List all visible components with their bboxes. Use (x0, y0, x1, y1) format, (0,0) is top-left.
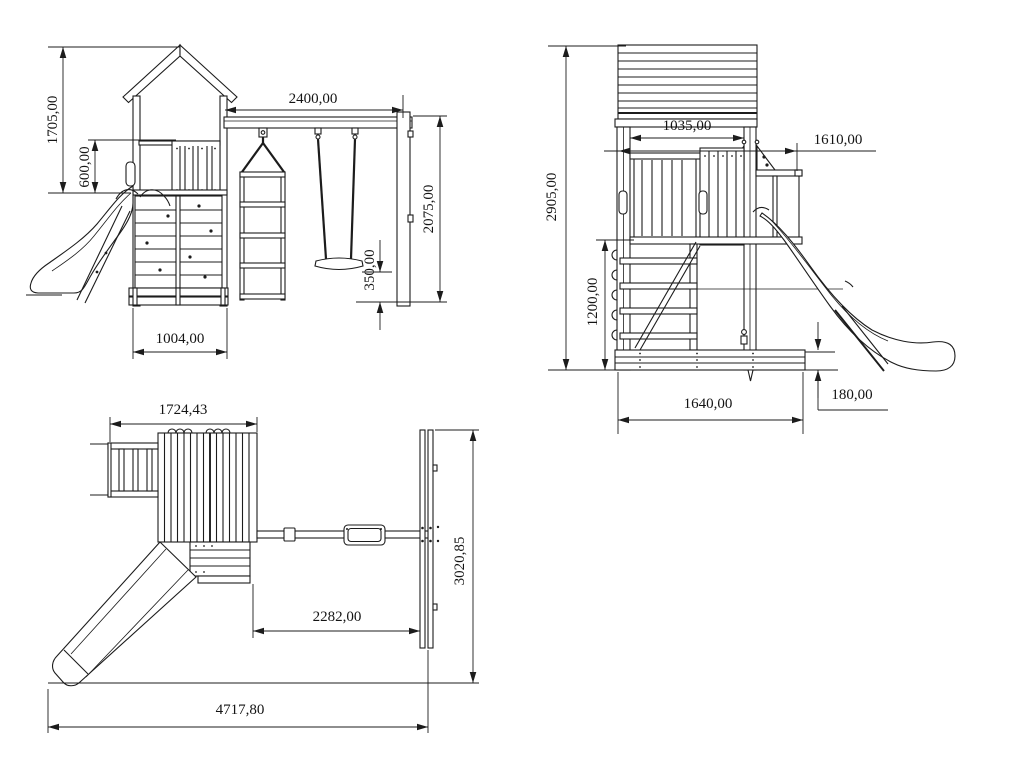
side-ladder (612, 242, 843, 350)
plan-steps (190, 542, 250, 583)
plan-overall-length-label: 4717,80 (216, 702, 265, 718)
side-ladder-height-label: 1200,00 (585, 278, 601, 327)
plan-dim-overall-depth: 3020,85 (435, 430, 479, 683)
plan-swing-frame (420, 430, 439, 648)
side-overall-height-label: 2905,00 (544, 173, 560, 222)
front-dim-beam-length: 2400,00 (225, 91, 403, 118)
side-grab-handle-right (699, 191, 707, 214)
plan-ladder (90, 443, 158, 497)
front-tower-width-label: 1004,00 (156, 331, 205, 347)
side-dim-base-width: 1640,00 (618, 372, 803, 434)
front-dim-seat-height: 350,00 (362, 240, 392, 330)
front-swing (315, 128, 363, 270)
front-balustrade (139, 141, 220, 197)
side-frame-height-label: 180,00 (831, 387, 872, 403)
plan-swing-bay-label: 2282,00 (313, 609, 362, 625)
plan-dim-overall-length: 4717,80 (48, 650, 428, 733)
side-elevation-view: 2905,00 1035,00 1610,00 1200,00 1640,00 (544, 45, 955, 434)
front-grab-handle (126, 162, 135, 186)
front-climbing-wall (135, 196, 222, 288)
side-platform-floor (630, 237, 802, 244)
plan-tower-depth-label: 1724,43 (159, 402, 208, 418)
front-rope-ladder (240, 128, 285, 300)
plan-view: 1724,43 2282,00 3020,85 4717,80 (48, 402, 479, 733)
drawing-canvas: 1705,00 600,00 2400,00 2075,00 350,00 (0, 0, 1024, 768)
plan-overall-depth-label: 3020,85 (452, 537, 468, 586)
drawing-sheet: 1705,00 600,00 2400,00 2075,00 350,00 (0, 0, 1024, 768)
plan-dim-swing-bay: 2282,00 (253, 584, 420, 638)
front-swing-frame-height-label: 2075,00 (421, 185, 437, 234)
front-elevation-view: 1705,00 600,00 2400,00 2075,00 350,00 (26, 45, 447, 359)
front-roof (123, 45, 237, 103)
front-total-height-label: 1705,00 (45, 96, 61, 145)
side-balustrade (619, 148, 744, 245)
plan-slide (53, 542, 196, 686)
front-sandbox-base (129, 288, 228, 305)
swing-seat (315, 258, 363, 270)
front-beam-length-label: 2400,00 (289, 91, 338, 107)
front-swing-beam (224, 117, 412, 128)
plan-roof (158, 429, 257, 542)
front-dim-tower-width: 1004,00 (133, 308, 227, 359)
side-sandbox-base (598, 350, 838, 381)
side-inner-width-label: 1035,00 (663, 118, 712, 134)
side-grab-handle-left (619, 191, 627, 214)
side-base-width-label: 1640,00 (684, 396, 733, 412)
plan-swing-beam (257, 525, 433, 545)
side-beam-offset-label: 1610,00 (814, 132, 863, 148)
front-rail-height-label: 600,00 (77, 146, 93, 187)
side-roof (618, 45, 757, 119)
front-swing-post (397, 112, 413, 306)
front-seat-height-label: 350,00 (362, 249, 378, 290)
